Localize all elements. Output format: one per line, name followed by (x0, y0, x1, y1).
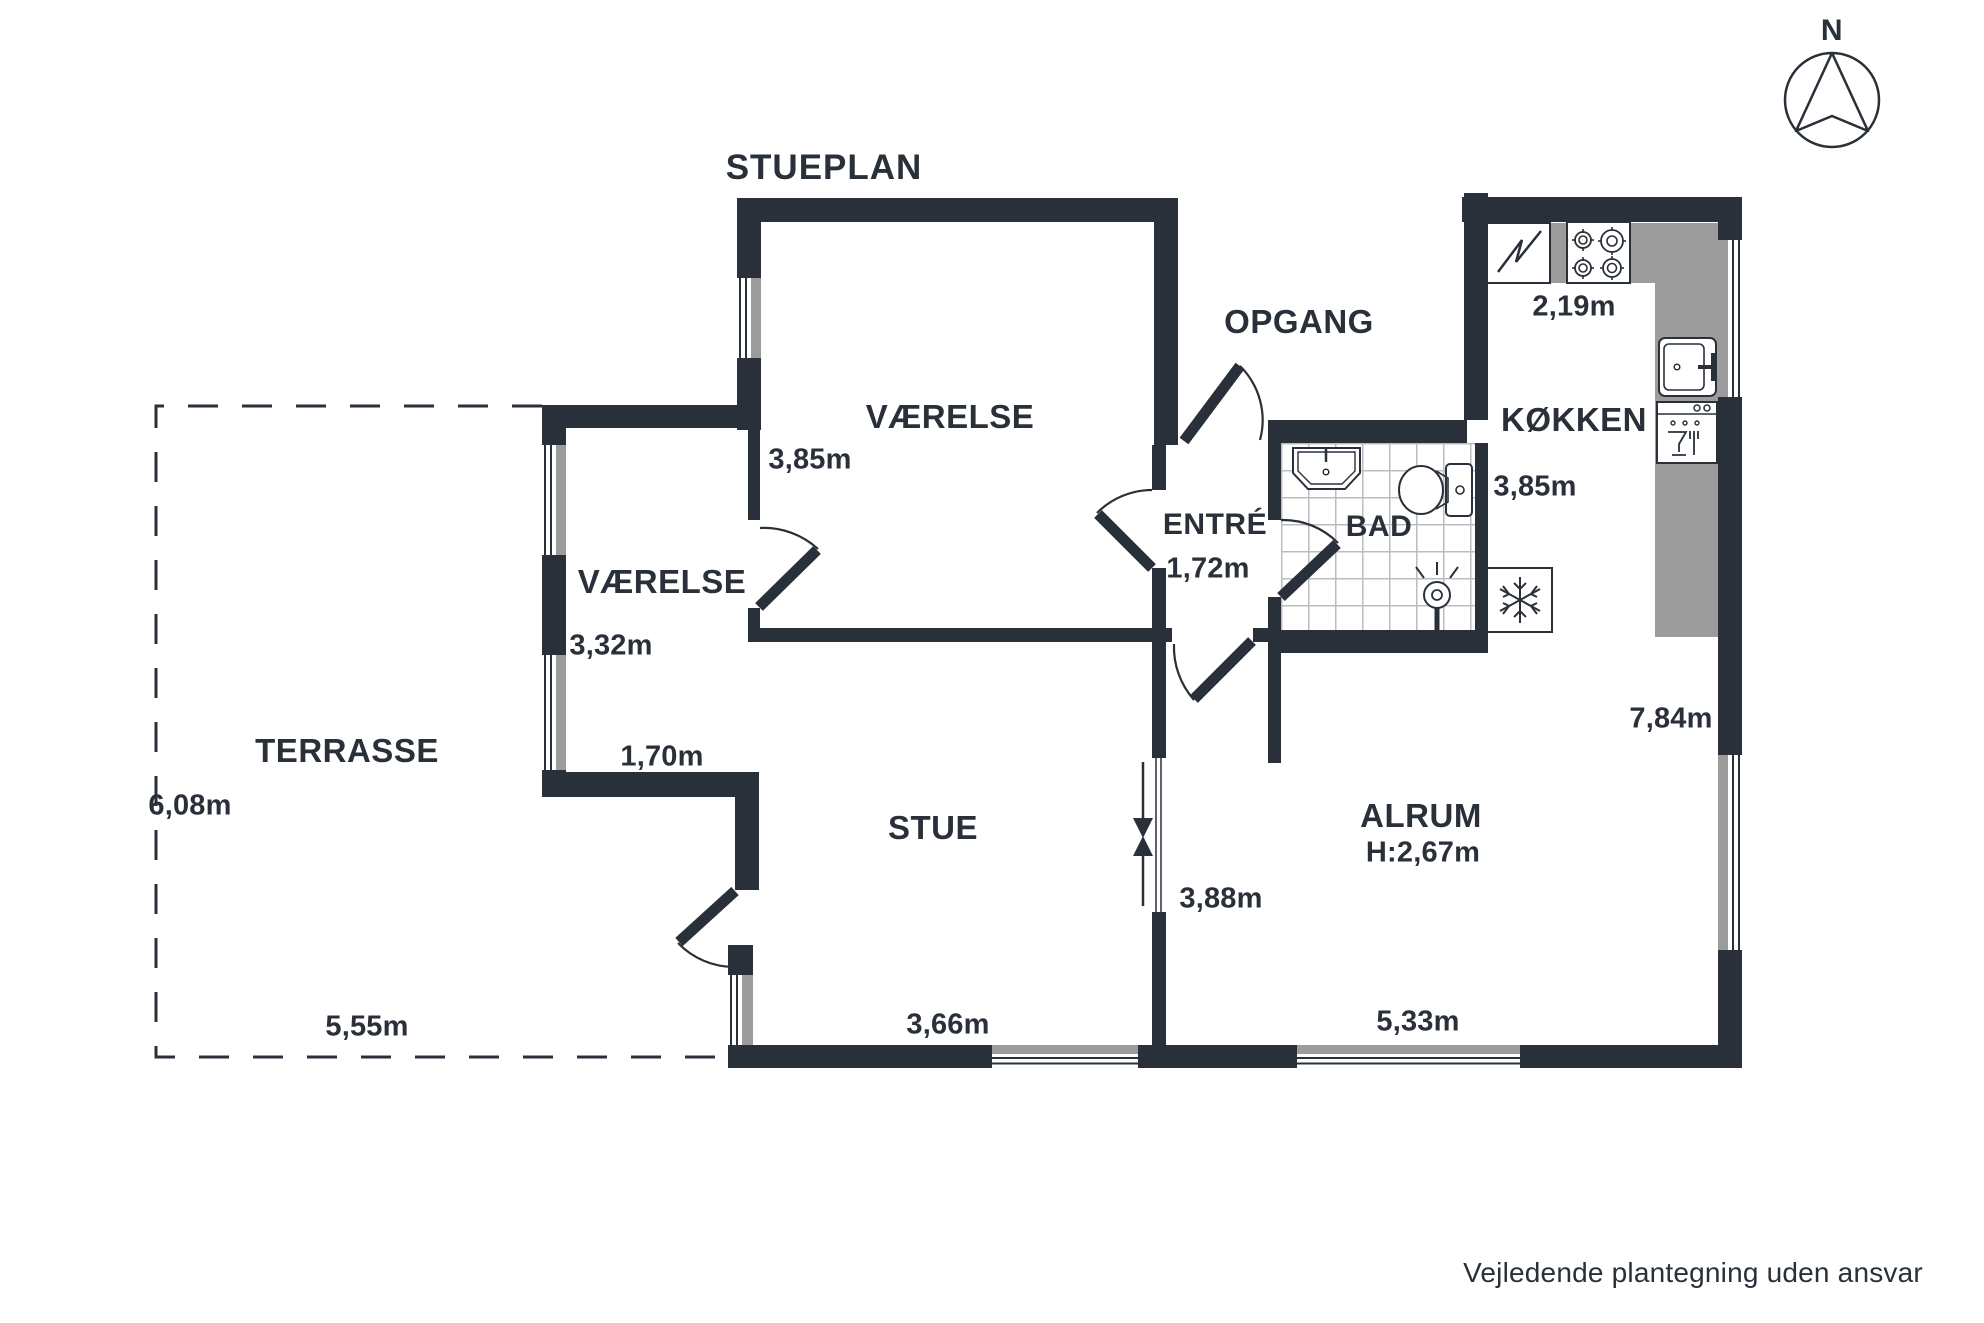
room-label-stue: STUE (888, 809, 978, 847)
wall (1152, 568, 1166, 758)
door-leaf (759, 550, 817, 607)
window (542, 655, 566, 770)
wall (542, 405, 758, 428)
wall (737, 198, 1178, 222)
wall (735, 772, 759, 890)
window (992, 1045, 1138, 1068)
refrigerator-snowflake-icon (1487, 568, 1552, 632)
window (737, 278, 761, 358)
door-leaf (679, 891, 735, 942)
wall (1268, 653, 1281, 763)
wall (1138, 1045, 1297, 1068)
kitchen-counter-right (1655, 283, 1718, 637)
door-leaf (1184, 366, 1240, 441)
room-label-vaerelse-top: VÆRELSE (866, 398, 1035, 436)
dim-kokken-depth: 3,85m (1493, 471, 1576, 504)
wall (758, 628, 1172, 642)
door-arc (1097, 490, 1152, 513)
opening-arrows (1133, 762, 1153, 906)
wall (542, 405, 566, 445)
compass-icon (1785, 53, 1879, 147)
dim-entre-width: 1,72m (1166, 553, 1249, 586)
room-label-vaerelse-small: VÆRELSE (578, 563, 747, 601)
kitchen-counter-top (1488, 223, 1718, 283)
dim-vaerelse-small-depth: 3,32m (569, 630, 652, 663)
wall (737, 198, 761, 278)
wall (728, 945, 753, 975)
wall (1152, 445, 1166, 490)
dim-alrum-width: 5,33m (1376, 1006, 1459, 1039)
window (1297, 1045, 1520, 1068)
wall (728, 1045, 992, 1068)
dim-alrum-opening-width: 3,88m (1179, 883, 1262, 916)
window (1718, 240, 1742, 397)
room-label-opgang: OPGANG (1224, 303, 1374, 341)
compass-north-label: N (1821, 14, 1843, 48)
room-label-terrasse: TERRASSE (255, 732, 439, 770)
wall (542, 772, 745, 797)
wall (1462, 197, 1742, 222)
door-arc (760, 528, 818, 549)
dim-alrum-ceiling-height: H:2,67m (1366, 837, 1480, 870)
door-arc (1174, 644, 1194, 700)
room-label-entre: ENTRÉ (1163, 508, 1267, 542)
wall (1475, 443, 1488, 653)
window (1718, 755, 1742, 950)
wall (1464, 193, 1488, 420)
room-label-kokken: KØKKEN (1501, 401, 1647, 439)
wall (748, 608, 760, 642)
wall (1268, 443, 1281, 520)
door-leaf (1194, 641, 1252, 699)
dim-terrasse-width: 5,55m (325, 1011, 408, 1044)
wall (1268, 630, 1488, 653)
wall (748, 428, 760, 520)
wall (1154, 198, 1178, 445)
disclaimer-text: Vejledende plantegning uden ansvar (1463, 1257, 1923, 1289)
wall (1152, 912, 1166, 1045)
dim-vaerelse-small-width: 1,70m (620, 741, 703, 774)
wall (1718, 397, 1742, 755)
dim-alrum-right-depth: 7,84m (1629, 703, 1712, 736)
door-leaf (1098, 514, 1152, 568)
floor-plan: STUEPLAN N VÆRELSE 3,85m OPGANG ENTRÉ 1,… (0, 0, 1984, 1323)
window (542, 445, 566, 555)
dim-vaerelse-top-depth: 3,85m (768, 444, 851, 477)
dim-kokken-width: 2,19m (1532, 291, 1615, 324)
dim-terrasse-depth: 6,08m (148, 790, 231, 823)
window (728, 975, 753, 1045)
terrasse-dashed-boundary (156, 406, 722, 1057)
wall (542, 555, 566, 655)
page-title: STUEPLAN (726, 148, 923, 188)
wall (1268, 420, 1467, 443)
door-arc (678, 943, 735, 967)
dim-stue-width: 3,66m (906, 1009, 989, 1042)
wall (1520, 1045, 1742, 1068)
wall (1718, 197, 1742, 240)
room-label-alrum: ALRUM (1360, 797, 1482, 835)
door-arc (1240, 366, 1263, 440)
room-label-bad: BAD (1346, 510, 1413, 544)
